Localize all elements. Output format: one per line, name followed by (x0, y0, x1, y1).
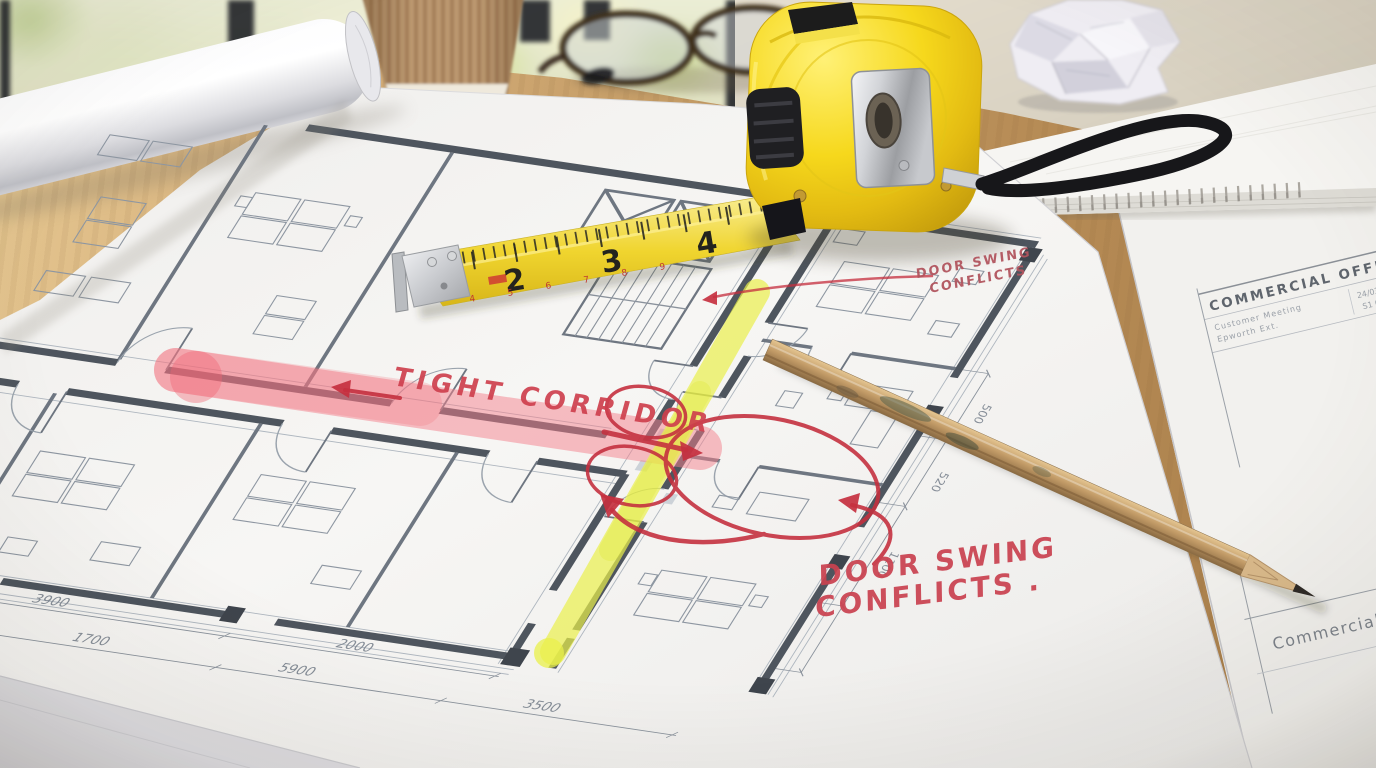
photo-scene: COMMERCIAL OFFICE Customer Meeting Epwor… (0, 0, 1376, 768)
scene-graphics: COMMERCIAL OFFICE Customer Meeting Epwor… (0, 0, 1376, 768)
vignette (0, 0, 1376, 768)
